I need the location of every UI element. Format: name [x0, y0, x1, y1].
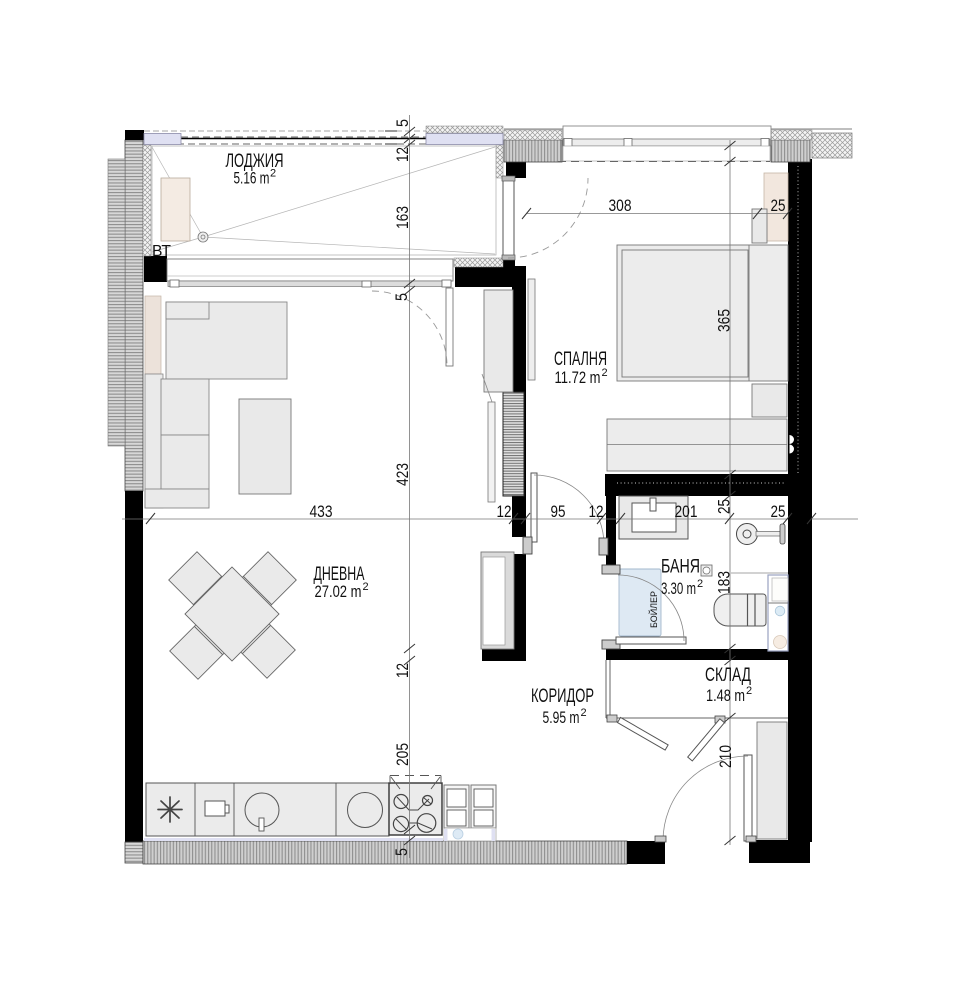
- svg-text:308: 308: [609, 197, 632, 215]
- svg-text:БОЙЛЕР: БОЙЛЕР: [648, 591, 660, 628]
- svg-text:КОРИДОР: КОРИДОР: [531, 686, 594, 707]
- svg-text:25: 25: [716, 499, 734, 514]
- svg-text:12: 12: [394, 663, 412, 678]
- svg-text:5: 5: [393, 293, 411, 301]
- svg-text:205: 205: [394, 743, 412, 766]
- svg-text:2: 2: [363, 581, 369, 593]
- svg-text:5.16 m: 5.16 m: [234, 169, 270, 188]
- svg-text:5.95 m: 5.95 m: [543, 708, 580, 727]
- svg-text:3.30 m: 3.30 m: [661, 579, 696, 598]
- svg-text:5: 5: [394, 119, 412, 127]
- svg-text:2: 2: [270, 168, 276, 180]
- svg-text:201: 201: [675, 503, 698, 521]
- svg-text:ВТ: ВТ: [152, 243, 171, 260]
- svg-text:433: 433: [310, 503, 333, 521]
- svg-text:1.48 m: 1.48 m: [706, 686, 745, 705]
- svg-text:27.02 m: 27.02 m: [315, 582, 362, 601]
- svg-text:163: 163: [394, 206, 412, 229]
- svg-text:2: 2: [602, 367, 608, 379]
- svg-text:183: 183: [716, 571, 734, 594]
- svg-text:12: 12: [497, 503, 512, 521]
- svg-text:СКЛАД: СКЛАД: [705, 665, 751, 686]
- svg-text:СПАЛНЯ: СПАЛНЯ: [554, 349, 607, 370]
- svg-text:2: 2: [581, 707, 587, 719]
- svg-text:365: 365: [716, 309, 734, 332]
- svg-text:95: 95: [551, 503, 566, 521]
- svg-text:12: 12: [589, 503, 604, 521]
- svg-text:2: 2: [746, 685, 752, 697]
- svg-text:25: 25: [771, 197, 786, 215]
- svg-text:12: 12: [394, 147, 412, 162]
- svg-text:5: 5: [393, 848, 411, 856]
- svg-text:11.72 m: 11.72 m: [555, 368, 601, 387]
- svg-text:210: 210: [717, 745, 735, 768]
- svg-text:2: 2: [697, 578, 703, 590]
- svg-text:БАНЯ: БАНЯ: [661, 557, 700, 578]
- svg-text:25: 25: [771, 503, 786, 521]
- svg-text:423: 423: [394, 463, 412, 486]
